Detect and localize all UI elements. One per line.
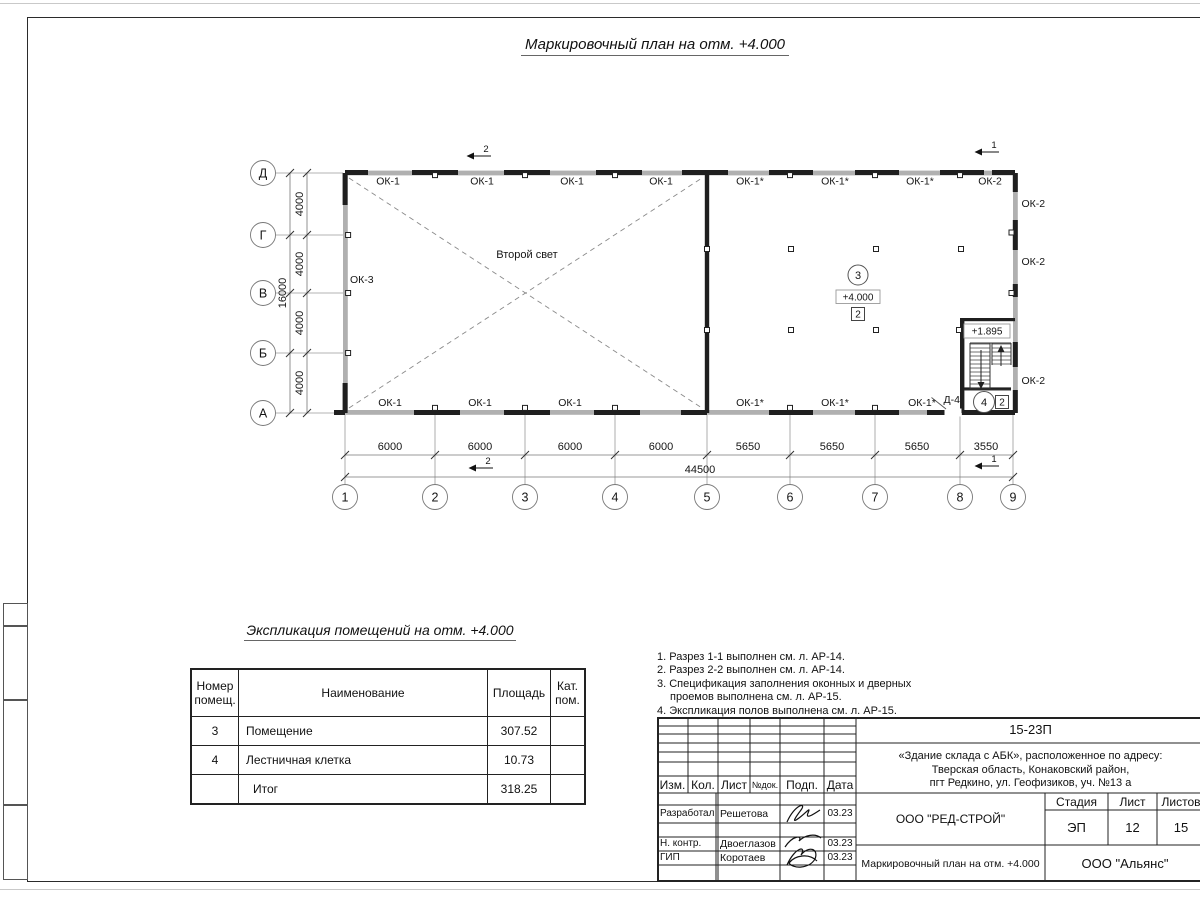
table-row: 4 Лестничная клетка 10.73 bbox=[191, 746, 585, 775]
section-number: 2 bbox=[483, 144, 488, 155]
signature bbox=[779, 831, 829, 871]
window-label: ОК-2 bbox=[1022, 375, 1046, 387]
tb-col-kol: Кол. bbox=[688, 776, 718, 793]
signature bbox=[781, 800, 825, 826]
note-line: проемов выполнена см. л. АР-15. bbox=[657, 691, 1017, 704]
columns bbox=[346, 173, 1014, 411]
tb-sheets-value: 15 bbox=[1157, 810, 1200, 845]
tb-date: 03.23 bbox=[824, 805, 856, 823]
dim-value: 5650 bbox=[820, 441, 844, 453]
middle-wall bbox=[705, 173, 709, 413]
room-category: 2 bbox=[855, 310, 861, 321]
tb-sheet-value: 12 bbox=[1108, 810, 1157, 845]
title-block: Изм. Кол. Лист №док. Подп. Дата Разработ… bbox=[657, 717, 1200, 882]
section-number: 1 bbox=[991, 454, 996, 465]
cell-category bbox=[551, 775, 586, 805]
tb-col-data: Дата bbox=[824, 776, 856, 793]
axis-label: Д bbox=[259, 167, 268, 181]
tb-col-podp: Подп. bbox=[780, 776, 824, 793]
dim-total: 44500 bbox=[685, 464, 716, 476]
cell-name: Помещение bbox=[239, 717, 488, 746]
section-number: 2 bbox=[485, 456, 490, 467]
axis-label: Г bbox=[260, 229, 267, 243]
tb-role: ГИП bbox=[660, 851, 716, 865]
window-label: ОК-1* bbox=[906, 176, 934, 188]
dim-value: 4000 bbox=[294, 192, 306, 216]
window-label: ОК-2 bbox=[1022, 256, 1046, 268]
axis-label: 7 bbox=[872, 491, 879, 505]
tb-col-ndok: №док. bbox=[750, 776, 780, 793]
door-opening bbox=[945, 409, 962, 417]
window-label: ОК-1 bbox=[470, 176, 494, 188]
note-line: 3. Спецификация заполнения оконных и две… bbox=[657, 678, 1017, 691]
axis-label: 3 bbox=[522, 491, 529, 505]
table-row: Итог 318.25 bbox=[191, 775, 585, 805]
window-label: ОК-1 bbox=[560, 176, 584, 188]
cell-area: 318.25 bbox=[488, 775, 551, 805]
axis-label: 9 bbox=[1010, 491, 1017, 505]
col-header-category: Кат. пом. bbox=[551, 669, 586, 717]
room-number: 3 bbox=[855, 270, 861, 282]
window-label: ОК-1* bbox=[908, 397, 936, 409]
axis-label: Б bbox=[259, 347, 267, 361]
dim-value: 4000 bbox=[294, 252, 306, 276]
window-label: ОК-1 bbox=[376, 176, 400, 188]
window-label: ОК-2 bbox=[978, 176, 1002, 188]
room-category: 2 bbox=[999, 398, 1005, 409]
door-label: Д-4 bbox=[944, 394, 961, 406]
dim-value: 4000 bbox=[294, 371, 306, 395]
tb-col-list: Лист bbox=[718, 776, 750, 793]
axis-label: 1 bbox=[342, 491, 349, 505]
tb-name: Решетова bbox=[720, 805, 780, 823]
axis-label: В bbox=[259, 287, 267, 301]
window-label: ОК-1* bbox=[736, 176, 764, 188]
margin-box bbox=[3, 626, 28, 700]
axis-label: 6 bbox=[787, 491, 794, 505]
window-label: ОК-1* bbox=[736, 397, 764, 409]
axis-bubbles-left: Д Г В Б А bbox=[251, 161, 276, 426]
window-label: ОК-2 bbox=[1022, 198, 1046, 210]
window-segments bbox=[334, 170, 1018, 415]
axis-label: 8 bbox=[957, 491, 964, 505]
cell-area: 10.73 bbox=[488, 746, 551, 775]
window-label: ОК-1 bbox=[558, 397, 582, 409]
dim-value: 6000 bbox=[378, 441, 402, 453]
window-label: ОК-1* bbox=[821, 176, 849, 188]
general-notes: 1. Разрез 1-1 выполнен см. л. АР-14. 2. … bbox=[657, 651, 1017, 718]
tb-sheet-label: Лист bbox=[1108, 793, 1157, 810]
margin-box bbox=[3, 603, 28, 626]
axis-label: А bbox=[259, 407, 268, 421]
cell-number: 4 bbox=[191, 746, 239, 775]
axis-label: 5 bbox=[704, 491, 711, 505]
window-labels: ОК-1 ОК-1 ОК-1 ОК-1 ОК-1* ОК-1* ОК-1* ОК… bbox=[350, 176, 1045, 410]
dim-value: 5650 bbox=[736, 441, 760, 453]
dim-value: 4000 bbox=[294, 311, 306, 335]
window-label: ОК-1 bbox=[468, 397, 492, 409]
walls bbox=[343, 171, 1018, 415]
cell-area: 307.52 bbox=[488, 717, 551, 746]
axis-grid-lines bbox=[276, 173, 1013, 484]
stair-structure bbox=[964, 343, 1011, 390]
dim-value: 6000 bbox=[558, 441, 582, 453]
table-row: 3 Помещение 307.52 bbox=[191, 717, 585, 746]
col-header-number: Номер помещ. bbox=[191, 669, 239, 717]
dim-value: 3550 bbox=[974, 441, 998, 453]
schedule-title: Экспликация помещений на отм. +4.000 bbox=[188, 622, 572, 638]
tb-address: «Здание склада с АБК», расположенное по … bbox=[856, 745, 1200, 793]
room-number: 4 bbox=[981, 397, 987, 409]
floor-plan: ОК-1 ОК-1 ОК-1 ОК-1 ОК-1* ОК-1* ОК-1* ОК… bbox=[0, 0, 1200, 560]
tb-role: Н. контр. bbox=[660, 837, 716, 851]
window-label: ОК-3 bbox=[350, 274, 374, 286]
window-label: ОК-1 bbox=[378, 397, 402, 409]
tb-name: Коротаев bbox=[720, 851, 780, 865]
col-header-name: Наименование bbox=[239, 669, 488, 717]
tb-sheets-label: Листов bbox=[1157, 793, 1200, 810]
axis-label: 4 bbox=[612, 491, 619, 505]
tb-org1: ООО "РЕД-СТРОЙ" bbox=[856, 793, 1045, 845]
dim-value: 6000 bbox=[649, 441, 673, 453]
tb-org2: ООО "Альянс" bbox=[1045, 845, 1200, 882]
sheet-bottom-edge bbox=[0, 889, 1200, 890]
axis-label: 2 bbox=[432, 491, 439, 505]
cell-number bbox=[191, 775, 239, 805]
tb-address-line: Тверская область, Конаковский район, bbox=[856, 764, 1200, 778]
dim-value: 5650 bbox=[905, 441, 929, 453]
dimension-lines bbox=[290, 173, 1013, 477]
tb-address-line: «Здание склада с АБК», расположенное по … bbox=[856, 750, 1200, 764]
dim-value: 6000 bbox=[468, 441, 492, 453]
dim-total: 16000 bbox=[277, 278, 289, 309]
second-light-cross bbox=[349, 178, 702, 408]
cell-category bbox=[551, 717, 586, 746]
tb-stage-label: Стадия bbox=[1045, 793, 1108, 810]
section-number: 1 bbox=[991, 140, 996, 151]
margin-box bbox=[3, 805, 28, 880]
room3-tag: 3 +4.000 2 bbox=[836, 265, 880, 321]
tb-name: Двоеглазов bbox=[720, 837, 780, 851]
cell-number: 3 bbox=[191, 717, 239, 746]
tb-drawing-title: Маркировочный план на отм. +4.000 bbox=[856, 845, 1045, 882]
section-marks: 2 1 2 1 bbox=[467, 140, 1000, 472]
note-line: 2. Разрез 2-2 выполнен см. л. АР-14. bbox=[657, 664, 1017, 677]
room-elevation: +4.000 bbox=[843, 293, 874, 304]
window-label: ОК-1* bbox=[821, 397, 849, 409]
tb-role: Разработал bbox=[660, 805, 716, 823]
second-light-label: Второй свет bbox=[496, 249, 557, 261]
tb-doc-number: 15-23П bbox=[856, 717, 1200, 743]
window-label: ОК-1 bbox=[649, 176, 673, 188]
col-header-area: Площадь bbox=[488, 669, 551, 717]
tb-col-izm: Изм. bbox=[657, 776, 688, 793]
note-line: 1. Разрез 1-1 выполнен см. л. АР-14. bbox=[657, 651, 1017, 664]
cell-name: Лестничная клетка bbox=[239, 746, 488, 775]
tb-address-line: пгт Редкино, ул. Геофизиков, уч. №13 а bbox=[856, 777, 1200, 791]
room-schedule-table: Номер помещ. Наименование Площадь Кат. п… bbox=[190, 668, 586, 805]
dimension-ticks bbox=[286, 169, 1017, 481]
margin-box bbox=[3, 700, 28, 805]
table-header-row: Номер помещ. Наименование Площадь Кат. п… bbox=[191, 669, 585, 717]
dimension-texts: 6000 6000 6000 6000 5650 5650 5650 3550 … bbox=[277, 192, 998, 476]
cell-name: Итог bbox=[239, 775, 488, 805]
cell-category bbox=[551, 746, 586, 775]
axis-bubbles-bottom: 1 2 3 4 5 6 7 8 9 bbox=[333, 485, 1026, 510]
room-elevation: +1.895 bbox=[972, 327, 1003, 338]
tb-stage-value: ЭП bbox=[1045, 810, 1108, 845]
